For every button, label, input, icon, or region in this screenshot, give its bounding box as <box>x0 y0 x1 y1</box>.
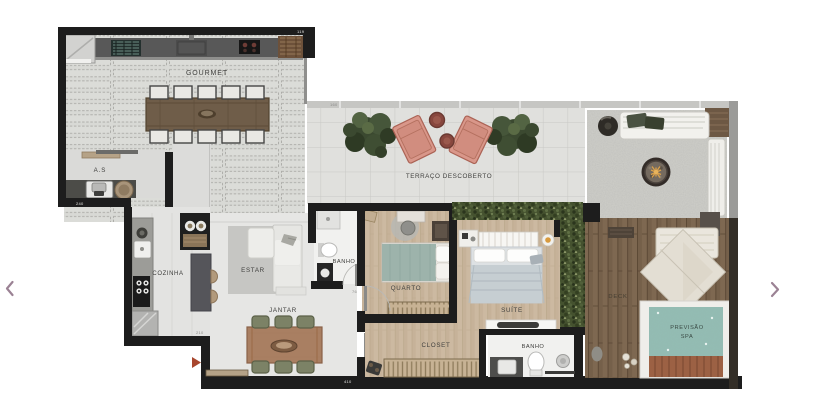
svg-text:BANHO: BANHO <box>522 344 545 350</box>
svg-text:BANHO: BANHO <box>333 259 356 265</box>
svg-text:COZINHA: COZINHA <box>152 271 183 277</box>
svg-text:119: 119 <box>297 29 305 34</box>
svg-text:SUÍTE: SUÍTE <box>501 307 523 314</box>
svg-text:QUARTO: QUARTO <box>391 285 421 292</box>
svg-text:210: 210 <box>196 330 204 335</box>
svg-text:410: 410 <box>344 379 352 384</box>
svg-text:PREVISÃO: PREVISÃO <box>670 324 703 331</box>
svg-text:DECK: DECK <box>608 294 627 300</box>
svg-text:JANTAR: JANTAR <box>269 307 297 314</box>
svg-text:ESTAR: ESTAR <box>241 267 265 274</box>
svg-text:TERRAÇO DESCOBERTO: TERRAÇO DESCOBERTO <box>406 173 492 180</box>
svg-text:A.S: A.S <box>94 167 107 174</box>
svg-text:CLOSET: CLOSET <box>422 342 451 349</box>
svg-text:76: 76 <box>352 289 358 294</box>
svg-text:SPA: SPA <box>681 334 694 340</box>
svg-text:160: 160 <box>330 102 338 107</box>
svg-text:240: 240 <box>76 201 84 206</box>
svg-text:GOURMET: GOURMET <box>186 70 228 77</box>
